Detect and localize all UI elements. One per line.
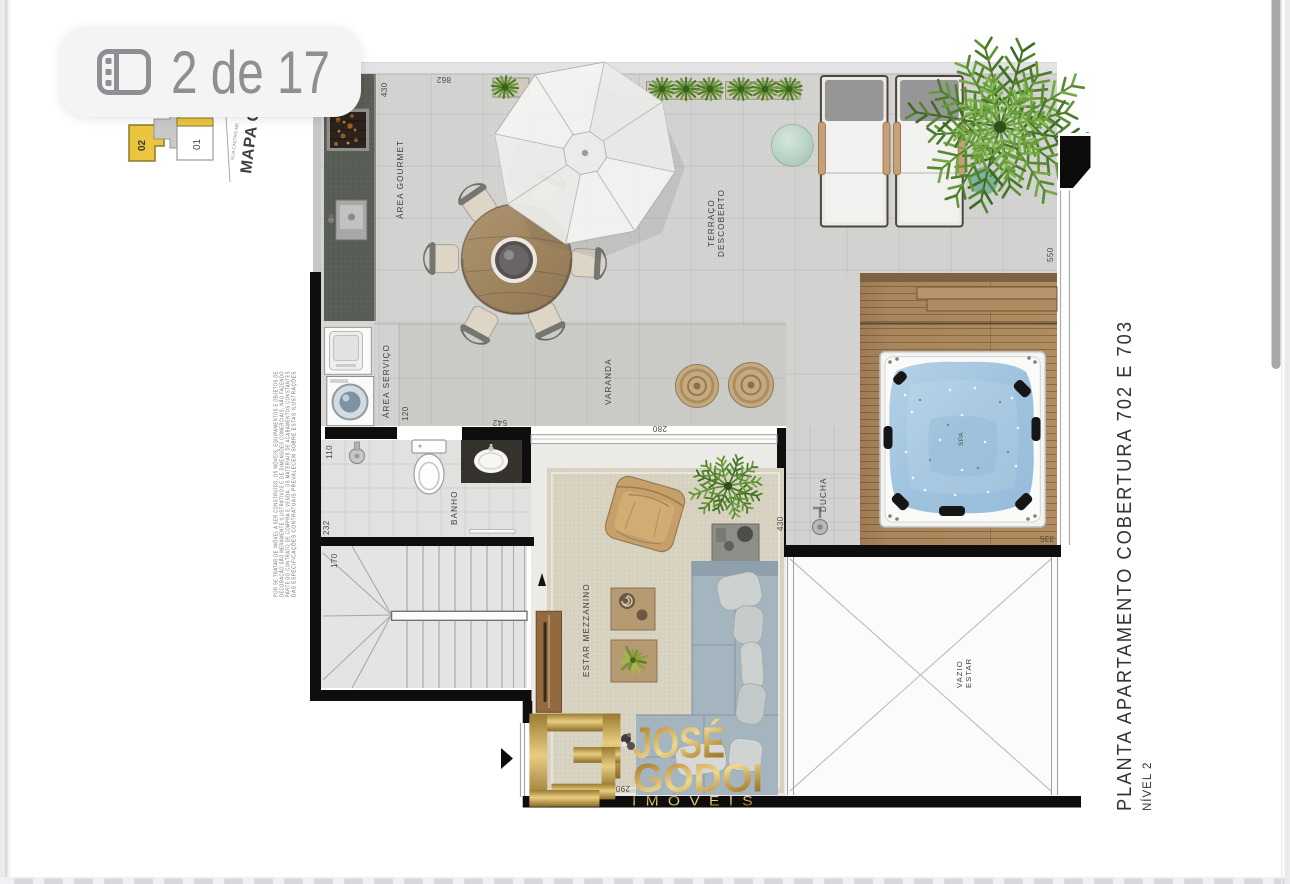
svg-text:ÁREA SERVIÇO: ÁREA SERVIÇO — [381, 344, 391, 418]
svg-text:170: 170 — [330, 553, 339, 568]
svg-text:VARANDA: VARANDA — [604, 358, 613, 405]
svg-text:NÍVEL 2: NÍVEL 2 — [1141, 762, 1154, 811]
svg-text:PLANTA APARTAMENTO COBERTURA 7: PLANTA APARTAMENTO COBERTURA 702 E 703 — [1114, 320, 1136, 811]
svg-text:IMÓVEIS: IMÓVEIS — [632, 794, 762, 809]
svg-text:120: 120 — [401, 406, 410, 421]
svg-text:DESCOBERTO: DESCOBERTO — [717, 189, 726, 257]
svg-text:ESTAR: ESTAR — [964, 658, 973, 688]
svg-text:542: 542 — [492, 418, 507, 427]
svg-text:ÁREA GOURMET: ÁREA GOURMET — [395, 140, 405, 219]
svg-text:TERRAÇO: TERRAÇO — [707, 199, 716, 247]
svg-text:335: 335 — [1039, 534, 1054, 543]
svg-text:2 de 17: 2 de 17 — [171, 39, 330, 106]
svg-text:01: 01 — [192, 138, 203, 150]
svg-text:DAS ESPECIFICAÇÕES CONTRATUAIS: DAS ESPECIFICAÇÕES CONTRATUAIS PREVALECE… — [291, 371, 298, 597]
svg-text:DECORAÇÃO SÃO MERAMENTE ILUSTR: DECORAÇÃO SÃO MERAMENTE ILUSTRATIVOS E D… — [279, 371, 286, 597]
svg-text:SPA: SPA — [958, 432, 965, 446]
svg-text:110: 110 — [325, 445, 334, 459]
svg-text:POR SE TRATAR DE IMÓVEL A SER: POR SE TRATAR DE IMÓVEL A SER CONSTRUÍDO… — [273, 371, 280, 597]
svg-text:ESTAR MEZZANINO: ESTAR MEZZANINO — [582, 583, 591, 677]
svg-text:430: 430 — [776, 516, 785, 531]
svg-text:550: 550 — [1046, 247, 1055, 262]
svg-text:DUCHA: DUCHA — [819, 477, 828, 512]
svg-text:862: 862 — [436, 75, 451, 84]
svg-text:VAZIO: VAZIO — [955, 660, 964, 688]
svg-text:02: 02 — [137, 139, 148, 151]
svg-text:232: 232 — [322, 520, 331, 535]
svg-text:290: 290 — [615, 784, 630, 793]
svg-text:280: 280 — [652, 424, 667, 433]
svg-text:BANHO: BANHO — [450, 490, 459, 525]
svg-text:430: 430 — [380, 82, 389, 97]
